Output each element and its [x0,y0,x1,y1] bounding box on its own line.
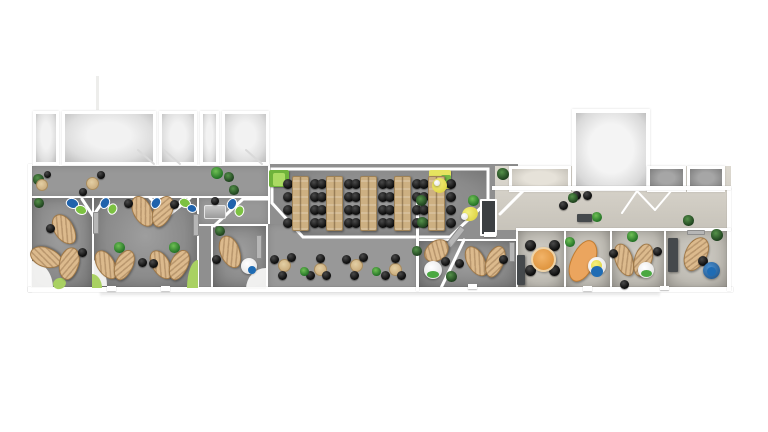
lounge-door-stub [583,286,592,291]
hall-chair [559,201,568,210]
office5-ball-accent [707,267,716,276]
plan-drop-shadow [100,292,660,297]
cafe-stool [381,271,390,280]
cafe-stool [278,271,287,280]
office3-plant [215,226,225,236]
office3-ball-accent [248,266,256,274]
office4-ball-accent [641,270,652,277]
wall-corridor-right-top [492,186,731,190]
classroom-chair [446,218,456,228]
cafe-stool [359,253,368,262]
corridor-table [36,179,48,191]
cafe-stool [270,255,279,264]
office3-chair [212,255,221,264]
hall-plant [683,215,694,226]
corridor-plant [211,167,223,179]
corridor-plant [224,172,234,182]
lounge-ball-bottom [591,266,603,277]
empty-room-5 [222,111,269,165]
classroom-chair [446,179,456,189]
entrance-bean-highlight [461,213,468,220]
reception-desk [480,199,497,236]
cafe-stool [350,271,359,280]
large-room [572,109,650,191]
office2-sideboard [93,212,99,234]
empty-room-2 [62,111,156,165]
office4-chair [653,247,662,256]
hall-plant [568,193,578,203]
office1-chair [46,224,55,233]
cafe-stool [342,255,351,264]
office-floor-plan [0,0,768,432]
office5-plant [711,229,723,241]
hall-plant [592,212,602,222]
empty-room-3 [159,111,197,165]
office3-sideboard [256,235,262,259]
classroom-table [394,176,411,231]
office1-plant [34,198,44,208]
cafe-stool [391,254,400,263]
lounge-plant [565,237,575,247]
office2-door-stub [161,286,170,291]
pocket-side-desk [204,205,226,219]
classroom-table [292,176,309,231]
corridor-stool [79,188,87,196]
officeB-door-stub [468,284,477,289]
cafe-plant [412,246,422,256]
cafe-plant [300,267,309,276]
hall-cabinet [577,214,592,222]
officeB-chair [499,255,508,264]
office4-chair [609,249,618,258]
corridor-stool [44,171,51,178]
pocket-plant [229,185,239,195]
office2-door-stub [107,286,116,291]
office2-chair [149,259,158,268]
officeB-chair [455,259,464,268]
classroom-plant [468,195,479,206]
office4-chair [620,280,629,289]
empty-room-4 [200,111,219,165]
entrance-door-stub [484,232,496,237]
cafe-stool [287,253,296,262]
office5-cabinet [668,238,678,272]
office4-plant [627,231,638,242]
officeA-chair [441,257,450,266]
classroom-table [360,176,377,231]
entrance-plant [417,217,428,228]
wall-shaft-shadow [96,76,99,110]
classroom-chair [446,192,456,202]
hall-chair [583,191,592,200]
corridor-stool [97,171,105,179]
office1-chair [78,248,87,257]
corridor-table [86,177,99,190]
meeting-table [531,247,556,272]
pocket-chair [211,197,219,205]
empty-room-1 [33,111,59,165]
cafe-stool [397,271,406,280]
entrance-ball-highlight [434,180,440,186]
classroom-table [326,176,343,231]
cafe-stool [322,271,331,280]
hall-plant [497,168,509,180]
classroom-chair [446,205,456,215]
office2-sideboard [193,214,199,236]
wall-right-outer [727,188,731,291]
entrance-plant [416,195,427,206]
cafe-stool [316,254,325,263]
cafe-plant [372,267,381,276]
office2-chair [124,199,133,208]
officeB-sideboard [509,242,515,262]
meeting-cabinet [517,255,525,285]
office5-sideboard [687,230,705,235]
office5-door-stub [660,286,669,290]
office2-chair [138,258,147,267]
officeA-ball-accent [427,271,439,278]
officeB-plant [446,271,457,282]
